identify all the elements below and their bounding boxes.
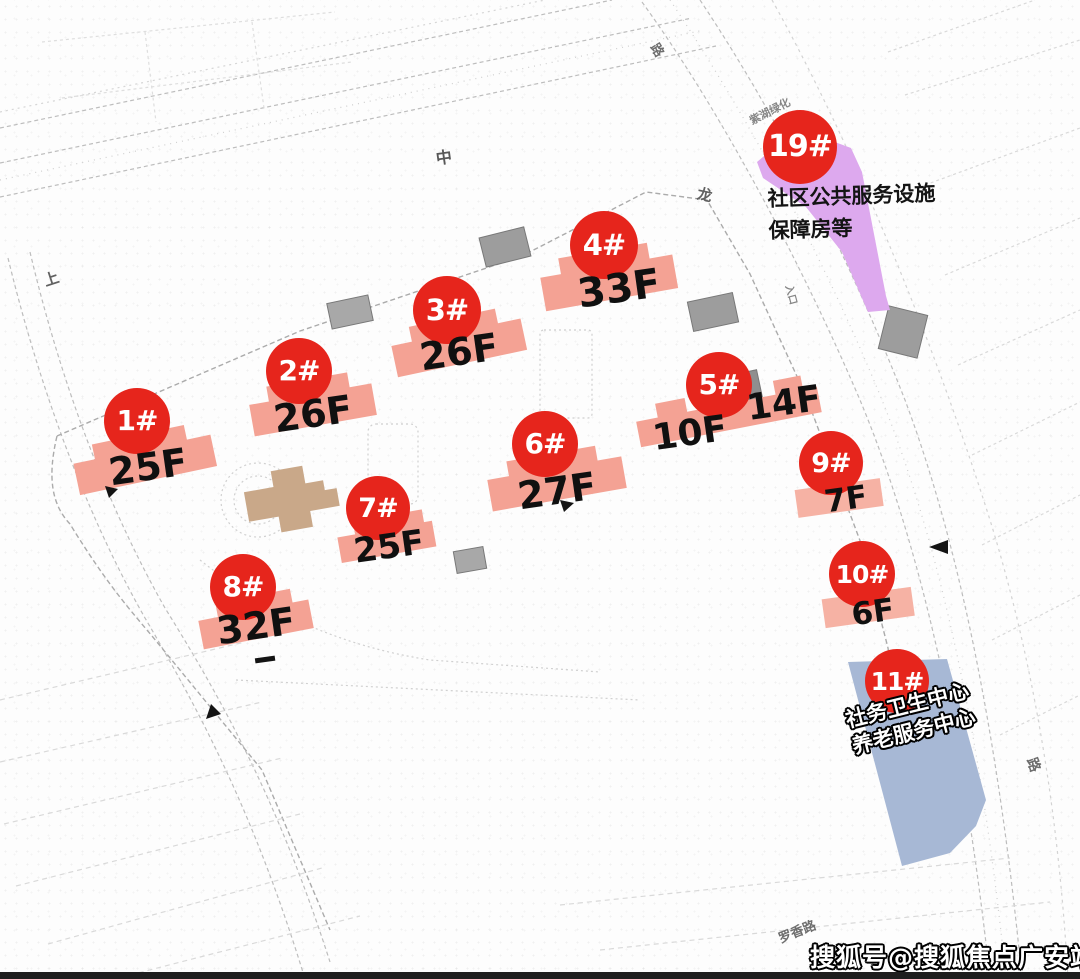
floors-building-8: 32F [214,602,297,651]
road-label-zhong: 中 [435,149,453,167]
parcel-19-note: 社区公共服务设施 保障房等 [767,178,937,247]
badge-label: 7# [358,495,397,522]
badge-label: 6# [525,430,566,458]
floors-building-5-left: 10F [651,411,730,457]
bottom-edge-bar [0,972,1080,979]
site-plan-map: 1# 2# 3# 4# 5# 6# 7# 8# 9# 10# 11# 19# 2… [0,0,1080,979]
clubhouse-shape [241,460,342,537]
floors-building-5-right: 14F [745,381,824,427]
parcel-19-note-line1: 社区公共服务设施 [767,178,936,215]
badge-label: 1# [117,407,158,435]
watermark: 搜狐号@搜狐焦点广安站 [810,938,1080,974]
floors-building-3: 26F [417,328,500,377]
parcel-19-note-line2: 保障房等 [768,210,937,247]
floors-building-10: 6F [850,595,897,632]
floors-building-6: 27F [515,467,598,516]
badge-label: 5# [699,371,740,399]
badge-label: 9# [811,450,850,477]
badge-label: 19# [768,132,832,162]
badge-label: 10# [836,562,889,587]
floors-building-7: 25F [352,525,427,568]
badge-label: 3# [426,296,468,325]
badge-label: 4# [583,231,625,260]
badge-building-19: 19# [763,110,837,184]
badge-label: 8# [223,573,264,601]
floors-building-4: 33F [575,263,663,314]
floors-building-1: 25F [106,443,189,492]
floors-building-2: 26F [271,390,354,439]
badge-label: 2# [279,357,320,385]
floors-building-9: 7F [823,482,870,519]
road-label-long: 龙 [696,187,714,205]
